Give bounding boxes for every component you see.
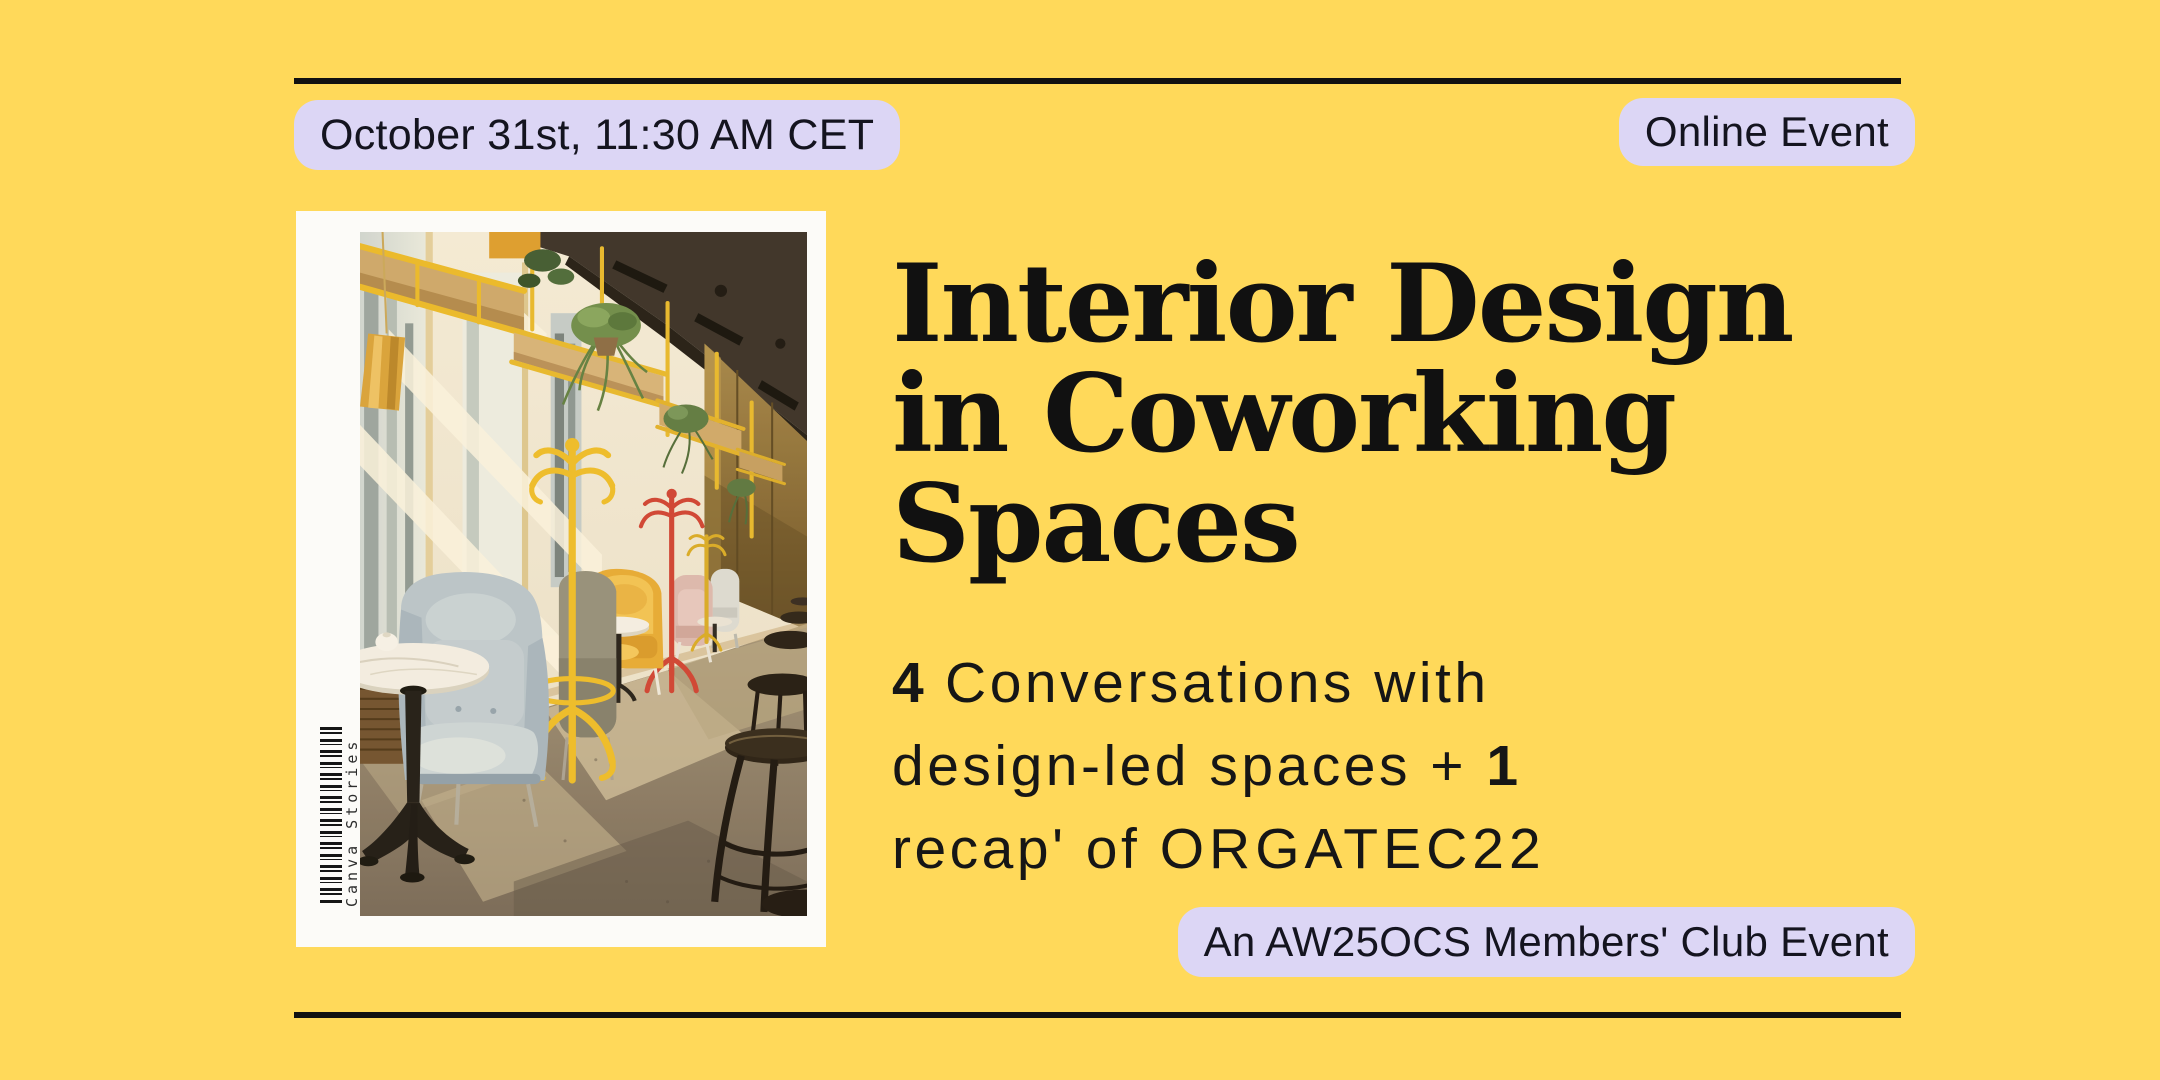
orgatec-highlight: ORGATEC22 — [1160, 808, 1546, 891]
title-line-3: Spaces — [892, 469, 1792, 579]
photo-frame: Canva Stories — [296, 211, 826, 947]
title-line-1: Interior Design — [892, 249, 1792, 359]
top-divider — [294, 78, 1901, 84]
page-title: Interior Design in Coworking Spaces — [892, 249, 1792, 579]
club-badge: An AW25OCS Members' Club Event — [1178, 907, 1915, 977]
subtitle-line-2-text: design-led spaces + — [892, 734, 1467, 798]
date-badge: October 31st, 11:30 AM CET — [294, 100, 900, 170]
club-badge-label: An AW25OCS Members' Club Event — [1204, 918, 1889, 966]
subtitle: 4 Conversations with design-led spaces +… — [892, 642, 1546, 891]
photo-caption-vertical: Canva Stories — [343, 725, 361, 907]
online-event-label: Online Event — [1645, 108, 1889, 156]
subtitle-line-3: recap' of ORGATEC22 — [892, 808, 1546, 891]
warm-light-overlay — [360, 232, 807, 916]
event-photo — [360, 232, 807, 916]
online-event-badge: Online Event — [1619, 98, 1915, 166]
event-banner: October 31st, 11:30 AM CET Online Event — [0, 0, 2160, 1080]
date-badge-label: October 31st, 11:30 AM CET — [320, 111, 874, 160]
subtitle-line-1: 4 Conversations with — [892, 642, 1546, 725]
subtitle-line-2: design-led spaces + 1 — [892, 725, 1546, 808]
barcode — [320, 727, 342, 905]
count-conversations: 4 — [892, 651, 926, 715]
title-line-2: in Coworking — [892, 359, 1792, 469]
subtitle-line-3-text: recap' of — [892, 817, 1140, 881]
count-recap: 1 — [1486, 734, 1520, 798]
bottom-divider — [294, 1012, 1901, 1018]
subtitle-line-1-text: Conversations with — [945, 651, 1490, 715]
orgatec-text: ORGATEC22 — [1160, 817, 1546, 881]
